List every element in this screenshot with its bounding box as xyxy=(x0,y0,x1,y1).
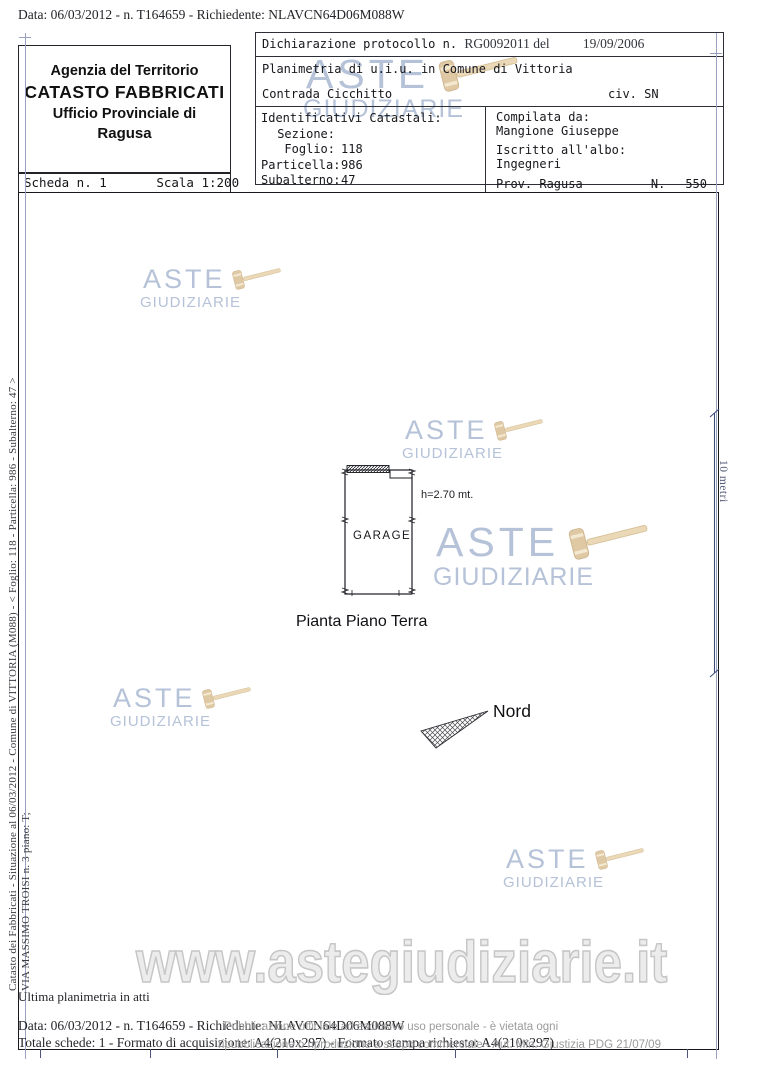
margin-tick xyxy=(710,53,722,54)
id-value: 118 xyxy=(341,142,363,156)
planimetria-line: Planimetria di u.i.u. in Comune di Vitto… xyxy=(256,57,723,82)
protocol-row: Dichiarazione protocollo n. RG0092011 de… xyxy=(256,33,723,57)
wall-ticks xyxy=(352,590,399,596)
fold-tick xyxy=(687,1049,688,1058)
cadastral-document-page: { "document": { "top_line": "Data: 06/03… xyxy=(0,0,764,1080)
compiler-name: Mangione Giuseppe xyxy=(496,125,723,139)
scale-bar xyxy=(703,403,733,683)
number-label: N. xyxy=(651,178,665,192)
id-value: 986 xyxy=(341,158,363,172)
side-text-line1: Catasto dei Fabbricati - Situazione al 0… xyxy=(7,301,20,991)
id-label: Foglio: xyxy=(261,142,335,158)
albo-label: Iscritto all'albo: xyxy=(496,144,723,158)
id-label: Subalterno: xyxy=(261,173,335,189)
footer-ultima: Ultima planimetria in atti xyxy=(18,989,150,1005)
scale-bar-label: 10 metri xyxy=(717,460,729,503)
number-value: 550 xyxy=(685,178,707,192)
identificativi-row: Foglio:118 xyxy=(261,142,485,158)
compilata-title: Compilata da: xyxy=(496,111,723,125)
civic-number: civ. SN xyxy=(608,87,659,101)
prov-row: Prov. Ragusa N. 550 xyxy=(496,178,723,192)
identificativi-row: Sezione: xyxy=(261,127,485,143)
plan-title: Pianta Piano Terra xyxy=(296,613,427,631)
id-value: 47 xyxy=(341,173,355,187)
scala-label: Scala 1:200 xyxy=(156,175,239,190)
albo-value: Ingegneri xyxy=(496,158,723,172)
top-data-line: Data: 06/03/2012 - n. T164659 - Richiede… xyxy=(18,7,404,23)
margin-tick xyxy=(19,37,31,38)
protocol-label: Dichiarazione protocollo n. xyxy=(262,37,457,51)
declaration-box: Dichiarazione protocollo n. RG0092011 de… xyxy=(255,32,724,185)
identificativi-row: Subalterno:47 xyxy=(261,173,485,189)
scheda-label: Scheda n. 1 xyxy=(24,175,107,190)
identificativi-cell: Identificativi Catastali: Sezione: Fogli… xyxy=(256,107,486,192)
agency-box: Agenzia del Territorio CATASTO FABBRICAT… xyxy=(18,45,231,174)
compilata-cell: Compilata da: Mangione Giuseppe Iscritto… xyxy=(486,107,723,192)
wall-step xyxy=(390,470,412,478)
agency-name: Agenzia del Territorio xyxy=(19,63,230,79)
office-line: Ufficio Provinciale di xyxy=(19,106,230,122)
north-arrow-shape xyxy=(421,711,488,748)
identificativi-title: Identificativi Catastali: xyxy=(261,111,485,127)
room-label: GARAGE xyxy=(353,530,411,542)
side-vertical-text: Catasto dei Fabbricati - Situazione al 0… xyxy=(7,301,32,991)
id-label: Sezione: xyxy=(261,127,335,143)
ceiling-height-label: h=2.70 mt. xyxy=(421,489,473,501)
id-label: Particella: xyxy=(261,158,335,174)
protocol-date: 19/09/2006 xyxy=(583,36,645,51)
garage-door xyxy=(347,466,389,473)
side-text-line2: VIA MASSIMO TROISI n. 3 piano: T; xyxy=(20,301,33,991)
address-line: Contrada Cicchitto xyxy=(262,87,392,101)
scheda-box: Scheda n. 1 Scala 1:200 xyxy=(18,172,231,193)
province-name: Ragusa xyxy=(19,125,230,142)
address-row: Contrada Cicchitto civ. SN xyxy=(256,82,723,107)
disclaimer-line-2: ripubblicazione o riproduzione a scopo c… xyxy=(218,1039,661,1051)
protocol-value: RG0092011 del xyxy=(464,36,549,51)
identificativi-row: Particella:986 xyxy=(261,158,485,174)
north-label: Nord xyxy=(493,701,531,722)
disclaimer-line-1: Pubblicazione ufficiale ad esclusivo uso… xyxy=(224,1021,558,1033)
prov-label: Prov. Ragusa xyxy=(496,178,583,192)
catasto-title: CATASTO FABBRICATI xyxy=(19,82,230,103)
